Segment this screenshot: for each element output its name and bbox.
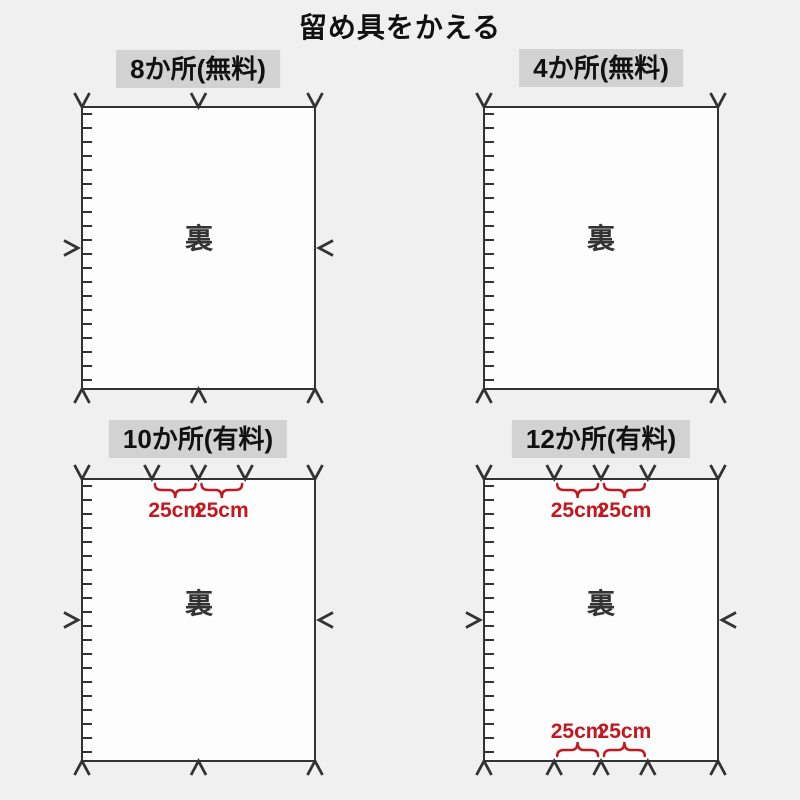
- fastener-mark-up-icon: [640, 761, 655, 775]
- fastener-mark-up-icon: [477, 389, 492, 403]
- fastener-mark-down-icon: [308, 465, 323, 479]
- fastener-diagram: 25cm25cm25cm25cm25cm25cm: [0, 0, 800, 800]
- fastener-mark-up-icon: [711, 761, 726, 775]
- fastener-mark-down-icon: [191, 93, 206, 107]
- fastener-mark-down-icon: [144, 465, 159, 479]
- fastener-mark-down-icon: [75, 93, 90, 107]
- fastener-mark-down-icon: [477, 465, 492, 479]
- fastener-mark-up-icon: [75, 389, 90, 403]
- fastener-mark-down-icon: [191, 465, 206, 479]
- back-side-label: 裏: [587, 225, 615, 253]
- measure-label: 25cm: [551, 720, 605, 743]
- fastener-mark-up-icon: [308, 389, 323, 403]
- fastener-mark-left-icon: [319, 613, 333, 628]
- measure-label: 25cm: [195, 499, 249, 522]
- fastener-mark-up-icon: [191, 761, 206, 775]
- fastener-mark-down-icon: [594, 465, 609, 479]
- fastener-mark-up-icon: [477, 761, 492, 775]
- fastener-mark-up-icon: [308, 761, 323, 775]
- panel-label-4-places: 4か所(無料): [519, 49, 683, 87]
- back-side-label: 裏: [185, 225, 213, 253]
- panel-label-12-places: 12か所(有料): [512, 420, 690, 458]
- measure-label: 25cm: [598, 720, 652, 743]
- fastener-mark-up-icon: [594, 761, 609, 775]
- fastener-mark-down-icon: [238, 465, 253, 479]
- fastener-mark-down-icon: [547, 465, 562, 479]
- panel-label-10-places: 10か所(有料): [109, 420, 287, 458]
- fastener-mark-up-icon: [191, 389, 206, 403]
- measure-label: 25cm: [551, 499, 605, 522]
- fastener-mark-down-icon: [308, 93, 323, 107]
- back-side-label: 裏: [185, 590, 213, 618]
- fastener-mark-up-icon: [711, 389, 726, 403]
- fastener-mark-right-icon: [466, 613, 480, 628]
- fastener-mark-up-icon: [75, 761, 90, 775]
- fastener-mark-down-icon: [477, 93, 492, 107]
- fastener-mark-left-icon: [319, 241, 333, 256]
- measure-label: 25cm: [598, 499, 652, 522]
- back-side-label: 裏: [587, 590, 615, 618]
- panel-label-8-places: 8か所(無料): [116, 50, 280, 88]
- fastener-options-figure: 留め具をかえる 25cm25cm25cm25cm25cm25cm 8か所(無料)…: [0, 0, 800, 800]
- fastener-mark-down-icon: [711, 93, 726, 107]
- fastener-mark-right-icon: [64, 241, 78, 256]
- fastener-mark-down-icon: [640, 465, 655, 479]
- fastener-mark-left-icon: [722, 613, 736, 628]
- fastener-mark-down-icon: [711, 465, 726, 479]
- fastener-mark-down-icon: [75, 465, 90, 479]
- fastener-mark-right-icon: [64, 613, 78, 628]
- fastener-mark-up-icon: [547, 761, 562, 775]
